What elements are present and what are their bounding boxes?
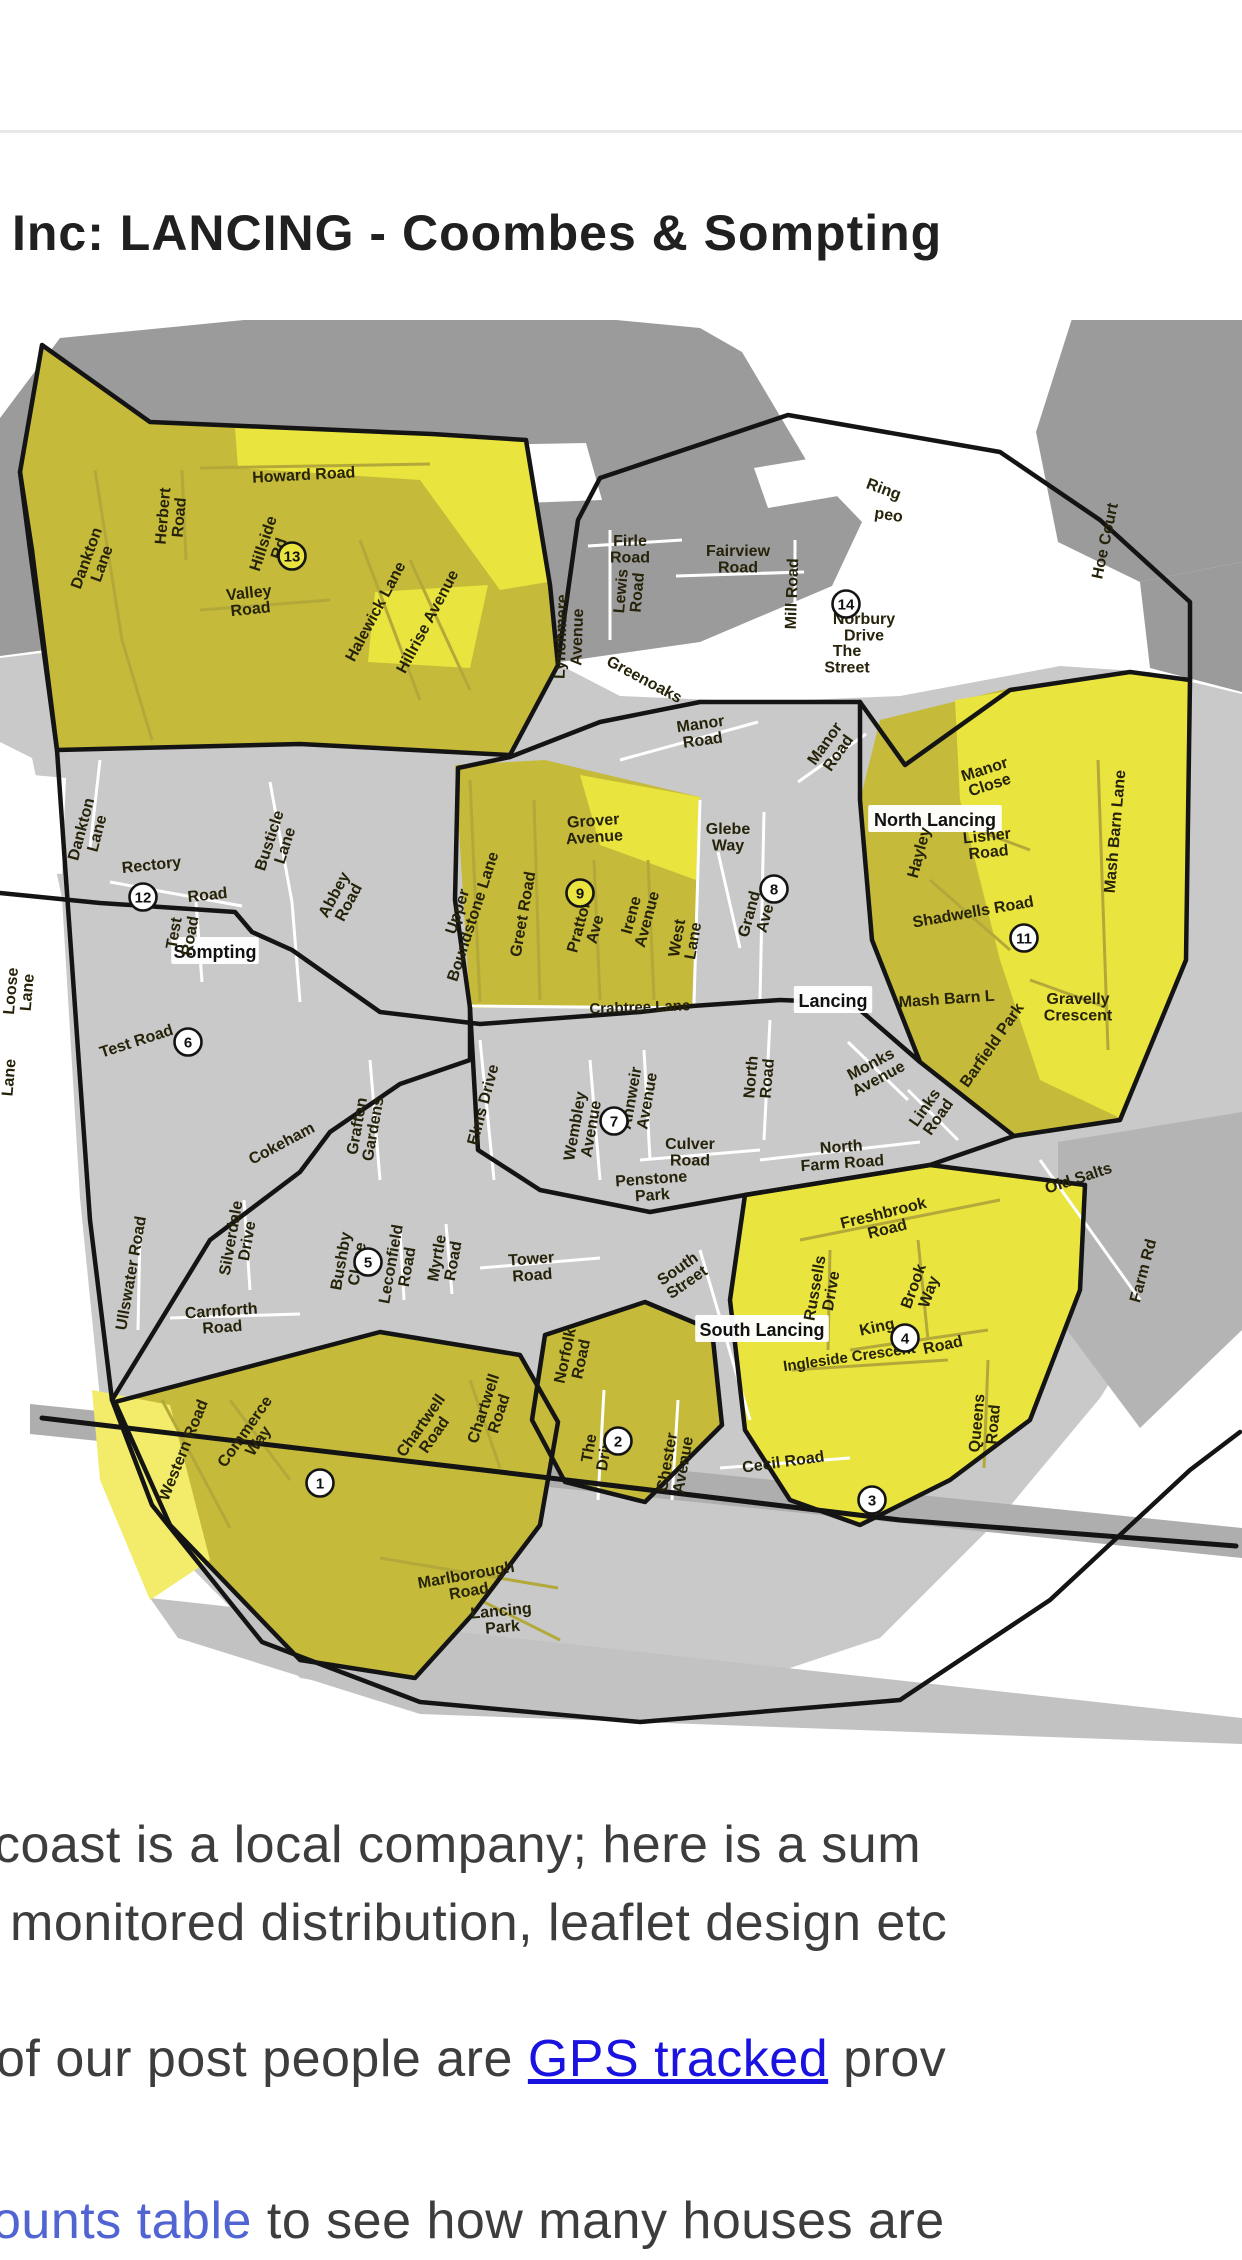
svg-text:4: 4 [901, 1331, 910, 1348]
svg-text:NorthRoad: NorthRoad [741, 1055, 778, 1100]
divider-line [0, 130, 1242, 133]
road-label: LisherRoad [962, 826, 1013, 864]
zone-marker: 2 [605, 1428, 632, 1455]
svg-text:GlebeWay: GlebeWay [706, 821, 751, 854]
area-label: Lancing [794, 986, 872, 1013]
zone-marker: 14 [833, 591, 860, 618]
svg-text:South Lancing: South Lancing [700, 1320, 825, 1340]
zone-marker: 8 [761, 876, 788, 903]
road-label: FirleRoad [610, 533, 650, 566]
counts-text-after: to see how many houses are [252, 2192, 945, 2250]
road-label: GlebeWay [706, 821, 751, 854]
svg-text:11: 11 [1016, 931, 1032, 948]
svg-text:LisherRoad: LisherRoad [962, 826, 1013, 864]
counts-table-link[interactable]: ounts table [0, 2192, 252, 2250]
svg-text:North Lancing: North Lancing [874, 810, 996, 830]
gps-text-before: of our post people are [0, 2030, 528, 2088]
intro-line-2: monitored distribution, leaflet design e… [10, 1884, 947, 1962]
svg-text:12: 12 [135, 890, 152, 907]
svg-text:14: 14 [838, 597, 855, 614]
svg-text:LewisRoad: LewisRoad [611, 568, 648, 615]
road-label: WestLane [666, 917, 706, 961]
road-label: LooseLane [1, 967, 38, 1017]
zone-marker: 13 [279, 543, 306, 570]
svg-text:FirleRoad: FirleRoad [610, 533, 650, 566]
gps-paragraph: of our post people are GPS tracked prov [0, 2020, 946, 2098]
svg-text:CulverRoad: CulverRoad [665, 1136, 715, 1169]
gps-tracked-link[interactable]: GPS tracked [528, 2030, 828, 2088]
page-title: Inc: LANCING - Coombes & Sompting [12, 204, 942, 262]
svg-text:ValleyRoad: ValleyRoad [225, 583, 274, 621]
zone-marker: 1 [307, 1470, 334, 1497]
svg-text:1: 1 [316, 1476, 324, 1493]
zone-marker: 12 [130, 884, 157, 911]
svg-text:Lancing: Lancing [798, 991, 867, 1011]
zone-marker: 6 [175, 1029, 202, 1056]
svg-text:7: 7 [610, 1114, 618, 1131]
intro-line-1: coast is a local company; here is a sum [0, 1806, 947, 1884]
svg-text:13: 13 [284, 549, 301, 566]
road-label: TowerRoad [508, 1249, 556, 1285]
svg-text:GroverAvenue: GroverAvenue [564, 811, 623, 848]
svg-text:9: 9 [576, 886, 584, 903]
svg-text:5: 5 [364, 1255, 372, 1272]
page: { "header": { "title": "Inc: LANCING - C… [0, 0, 1242, 2208]
lancing-distribution-map: SomptingLancingNorth LancingSouth Lancin… [0, 320, 1242, 1744]
svg-text:TowerRoad: TowerRoad [508, 1249, 556, 1285]
road-label: Lane [0, 1058, 20, 1097]
zone-marker: 11 [1011, 925, 1038, 952]
road-label: NorthRoad [741, 1055, 778, 1100]
svg-text:GravellyCrescent: GravellyCrescent [1044, 991, 1113, 1024]
road-label: ManorRoad [676, 713, 728, 753]
svg-text:Crabtree Lane: Crabtree Lane [589, 997, 690, 1018]
zone-marker: 5 [355, 1249, 382, 1276]
gps-text-after: prov [828, 2030, 946, 2088]
svg-text:ManorRoad: ManorRoad [676, 713, 728, 753]
road-label: CulverRoad [665, 1136, 715, 1169]
svg-text:Mill Road: Mill Road [783, 558, 802, 630]
counts-paragraph: ounts table to see how many houses are [0, 2182, 945, 2260]
svg-text:WestLane: WestLane [666, 917, 706, 961]
svg-text:8: 8 [770, 882, 778, 899]
svg-text:LooseLane: LooseLane [1, 967, 38, 1017]
zone-marker: 7 [601, 1108, 628, 1135]
zone-marker: 4 [892, 1325, 919, 1352]
svg-text:2: 2 [614, 1434, 622, 1451]
svg-text:3: 3 [868, 1493, 876, 1510]
road-label: GravellyCrescent [1044, 991, 1113, 1024]
road-label: ValleyRoad [225, 583, 274, 621]
road-label: Mill Road [783, 558, 802, 630]
intro-paragraph: coast is a local company; here is a sum … [0, 1806, 947, 1962]
road-label: GroverAvenue [564, 811, 623, 848]
zone-marker: 9 [567, 880, 594, 907]
zone-marker: 3 [859, 1487, 886, 1514]
road-label: Crabtree Lane [589, 997, 690, 1018]
svg-text:Lane: Lane [0, 1058, 20, 1097]
road-label: LewisRoad [611, 568, 648, 615]
svg-text:6: 6 [184, 1035, 192, 1052]
